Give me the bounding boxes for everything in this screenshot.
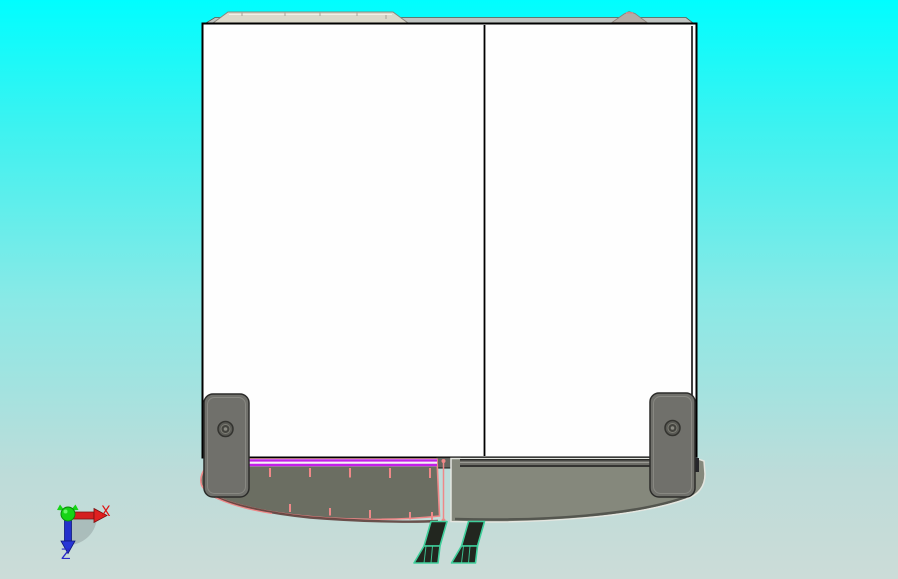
x-axis-label: X [101,504,111,520]
right-bracket-bolt [665,421,680,436]
leveling-foot-right[interactable] [452,522,485,564]
right-foot-bracket[interactable] [650,393,695,497]
model-scene: X Z [0,0,898,579]
top-lid[interactable] [213,12,408,23]
left-bracket-bolt [218,422,233,437]
left-foot-bracket[interactable] [204,394,249,497]
top-hinge-cap[interactable] [612,12,647,23]
leveling-foot-left[interactable] [414,522,447,564]
cabinet-front-panel[interactable] [203,24,697,458]
edge-endpoint [442,459,446,463]
cad-viewport[interactable]: X Z [0,0,898,579]
z-axis-label: Z [61,547,71,563]
orientation-triad: X Z [57,504,111,563]
